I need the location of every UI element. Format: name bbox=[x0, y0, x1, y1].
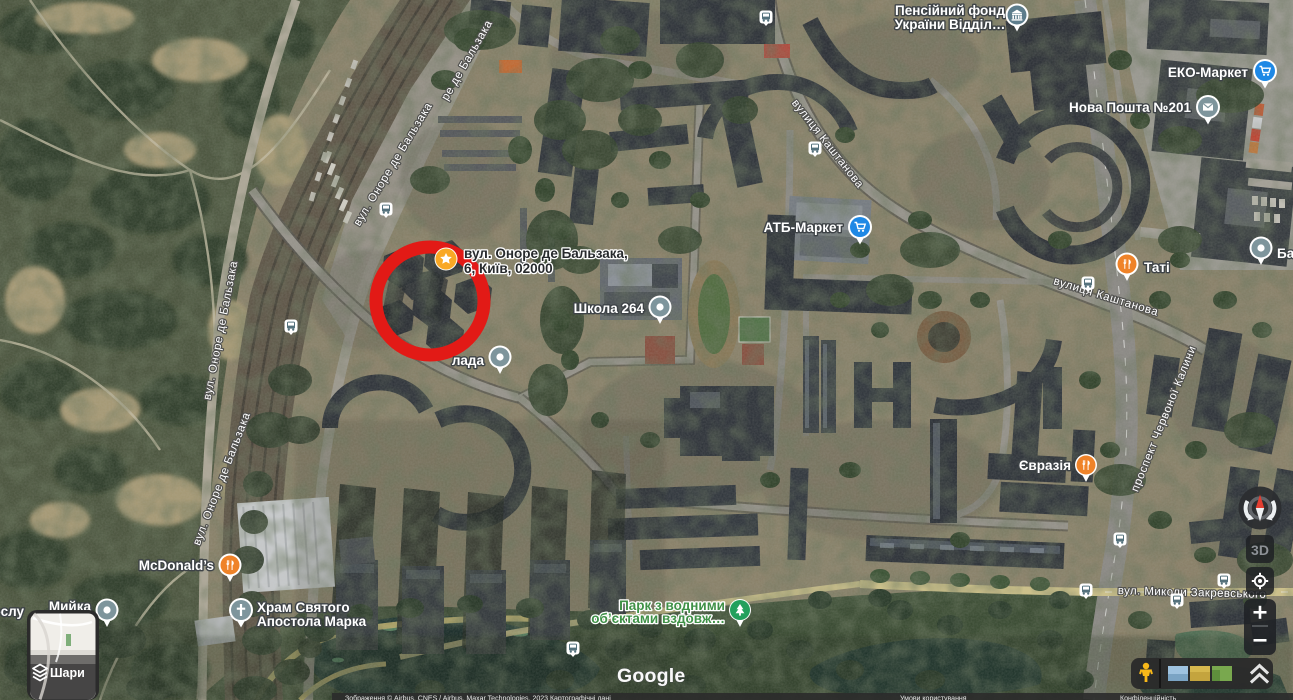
svg-text:Google: Google bbox=[617, 665, 685, 687]
svg-text:Храм Святого: Храм Святого bbox=[257, 600, 350, 615]
svg-text:Пенсійний фонд: Пенсійний фонд bbox=[895, 3, 1005, 18]
svg-text:ослу: ослу bbox=[0, 604, 24, 619]
svg-text:об’єктами вздовж…: об’єктами вздовж… bbox=[591, 611, 725, 626]
svg-text:вул. Оноре де Бальзака,: вул. Оноре де Бальзака, bbox=[464, 246, 628, 261]
svg-text:Зображення © Airbus, CNES / Ai: Зображення © Airbus, CNES / Airbus, Maxa… bbox=[345, 695, 611, 700]
svg-text:Школа 264: Школа 264 bbox=[574, 301, 645, 316]
svg-text:України Відділ…: України Відділ… bbox=[895, 17, 1006, 32]
svg-text:6, Київ, 02000: 6, Київ, 02000 bbox=[464, 261, 553, 276]
svg-text:Шари: Шари bbox=[50, 666, 85, 680]
svg-text:ЕКО-Маркет: ЕКО-Маркет bbox=[1168, 65, 1248, 80]
svg-text:Євразія: Євразія bbox=[1019, 458, 1071, 473]
svg-text:Умови користування: Умови користування bbox=[900, 696, 967, 700]
svg-text:Конфіденційність: Конфіденційність bbox=[1120, 695, 1177, 700]
svg-text:Нова Пошта №201: Нова Пошта №201 bbox=[1069, 100, 1192, 115]
svg-text:Ба: Ба bbox=[1277, 246, 1293, 261]
svg-text:лада: лада bbox=[452, 353, 485, 368]
svg-text:Таті: Таті bbox=[1144, 260, 1170, 275]
svg-text:McDonald’s: McDonald’s bbox=[139, 558, 214, 573]
svg-text:АТБ-Маркет: АТБ-Маркет bbox=[764, 220, 844, 235]
svg-text:3D: 3D bbox=[1251, 542, 1269, 558]
svg-text:Апостола Марка: Апостола Марка bbox=[257, 614, 367, 629]
